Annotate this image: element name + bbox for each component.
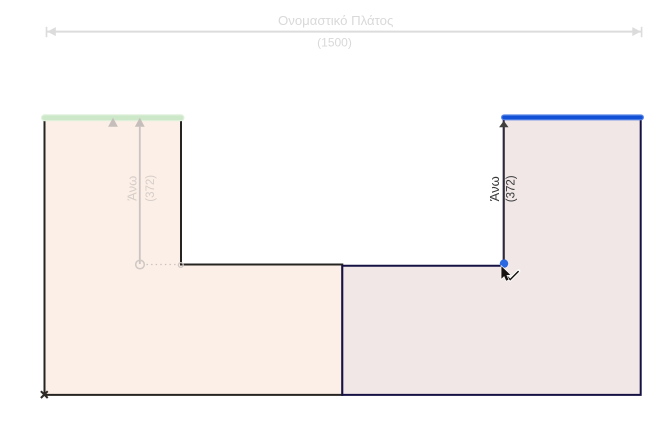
svg-text:Άνω: Άνω xyxy=(487,176,502,201)
svg-text:(1500): (1500) xyxy=(317,35,352,49)
svg-text:Άνω: Άνω xyxy=(125,176,140,201)
svg-text:(372): (372) xyxy=(505,175,517,202)
svg-text:(372): (372) xyxy=(145,175,157,202)
svg-text:Ονομαστικό Πλάτος: Ονομαστικό Πλάτος xyxy=(278,13,393,28)
